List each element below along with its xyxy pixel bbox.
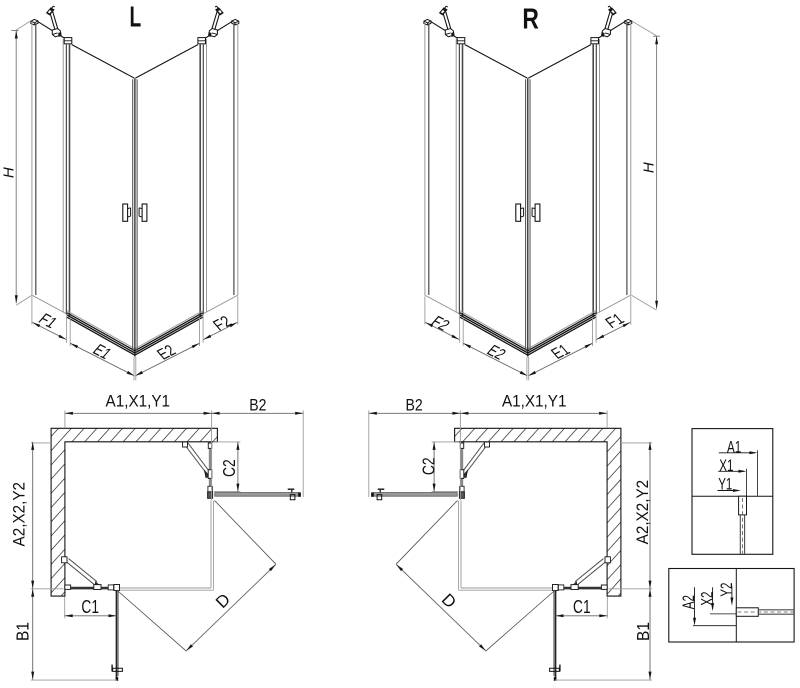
svg-text:A1: A1 xyxy=(727,438,741,456)
svg-text:A2,X2,Y2: A2,X2,Y2 xyxy=(10,482,28,547)
svg-text:C2: C2 xyxy=(418,457,438,475)
svg-text:Y2: Y2 xyxy=(718,583,736,597)
svg-text:A1,X1,Y1: A1,X1,Y1 xyxy=(502,393,567,411)
svg-text:X2: X2 xyxy=(699,592,717,606)
svg-text:Y1: Y1 xyxy=(718,476,732,494)
svg-text:X1: X1 xyxy=(719,457,733,475)
svg-text:H: H xyxy=(1,167,18,178)
svg-text:A1,X1,Y1: A1,X1,Y1 xyxy=(106,393,171,411)
svg-text:L: L xyxy=(129,2,141,34)
svg-text:H: H xyxy=(641,162,658,173)
svg-text:B2: B2 xyxy=(249,397,266,415)
svg-text:R: R xyxy=(522,4,539,36)
svg-text:B1: B1 xyxy=(13,622,33,641)
svg-text:C1: C1 xyxy=(573,597,591,617)
svg-text:A2,X2,Y2: A2,X2,Y2 xyxy=(634,480,652,545)
svg-text:B1: B1 xyxy=(633,622,653,641)
svg-text:B2: B2 xyxy=(406,397,423,415)
svg-text:A2: A2 xyxy=(680,595,698,609)
svg-text:C2: C2 xyxy=(219,459,239,477)
svg-text:C1: C1 xyxy=(81,597,99,617)
